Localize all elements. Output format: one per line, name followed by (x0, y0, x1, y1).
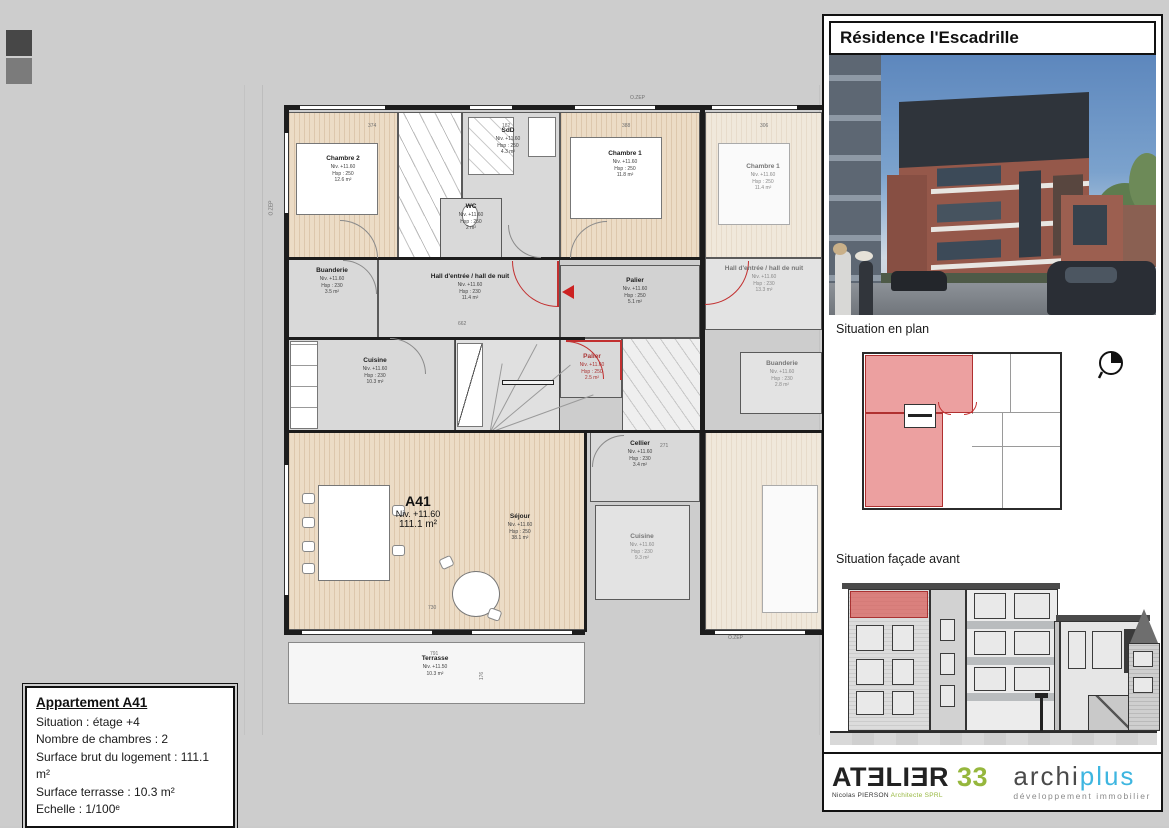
archiplus-subtext: développement immobilier (1013, 792, 1151, 801)
dim-label: 791 (430, 651, 438, 657)
archiplus-part2: plus (1080, 761, 1136, 791)
archiplus-logo: archiplus développement immobilier (1013, 763, 1151, 801)
dim-label: 271 (660, 443, 668, 449)
entrance-marker-icon (562, 285, 574, 299)
stair-handrail (502, 380, 554, 385)
title-panel: Résidence l'Escadrille (822, 14, 1163, 812)
apartment-info-box: Appartement A41 Situation : étage +4 Nom… (25, 686, 235, 828)
dim-label: 730 (428, 605, 436, 611)
atelier33-logo: ATƎLIƎR 33 Nicolas PIERSON Architecte SP… (832, 764, 988, 800)
dim-label: 182 (502, 123, 510, 129)
unit-label-a41: A41 Niv. +11.60 111.1 m² (362, 493, 474, 530)
room-buanderie-voisin (740, 352, 822, 414)
dim-label: O.ZEP (728, 635, 743, 641)
dim-label: O.ZEP (630, 95, 645, 101)
wc-fixture (462, 205, 478, 227)
highlighted-facade-unit (850, 591, 928, 618)
dim-label: 388 (622, 123, 630, 129)
kitchen-counter (290, 341, 318, 429)
building-rendering-image (829, 55, 1156, 315)
atelier-subtext: Nicolas PIERSON (832, 792, 889, 799)
info-line-terrasse: Surface terrasse : 10.3 m² (36, 784, 224, 801)
dim-label: 306 (760, 123, 768, 129)
drawing-sheet: O.ZEP O.ZEP 374 182 388 306 662 271 730 … (0, 0, 1169, 826)
registration-mark (6, 58, 32, 84)
logos-bar: ATƎLIƎR 33 Nicolas PIERSON Architecte SP… (824, 752, 1161, 810)
registration-mark (6, 30, 32, 56)
info-line-surface: Surface brut du logement : 111.1 m² (36, 749, 224, 784)
key-plan (852, 346, 1137, 524)
atelier-wordmark: ATƎLIƎR (832, 762, 949, 792)
info-line-chambres: Nombre de chambres : 2 (36, 731, 224, 748)
room-cuisine-voisin (595, 505, 690, 600)
dim-label: 662 (458, 321, 466, 327)
info-line-echelle: Echelle : 1/100ᵉ (36, 801, 224, 818)
dim-label: 176 (479, 672, 485, 680)
bed (570, 137, 662, 219)
dim-label: O.ZEP (269, 200, 275, 215)
apartment-info-title: Appartement A41 (36, 695, 224, 710)
bed (718, 143, 790, 225)
section-label-plan: Situation en plan (836, 322, 929, 336)
room-palier (560, 265, 700, 338)
project-title: Résidence l'Escadrille (829, 21, 1156, 55)
stair-duct (457, 343, 483, 427)
north-arrow-icon (1092, 348, 1128, 384)
section-label-facade: Situation façade avant (836, 552, 960, 566)
facade-elevation (830, 569, 1157, 754)
floor-plan: O.ZEP O.ZEP 374 182 388 306 662 271 730 … (240, 85, 822, 735)
atelier-subtext2: Architecte SPRL (891, 792, 943, 799)
info-line-situation: Situation : étage +4 (36, 714, 224, 731)
shaft-zone (622, 338, 705, 432)
bathroom-fixture (528, 117, 556, 157)
atelier-number: 33 (957, 762, 988, 792)
archiplus-part1: archi (1013, 761, 1079, 791)
dim-label: 374 (368, 123, 376, 129)
bed (296, 143, 378, 215)
dining-table (762, 485, 818, 613)
